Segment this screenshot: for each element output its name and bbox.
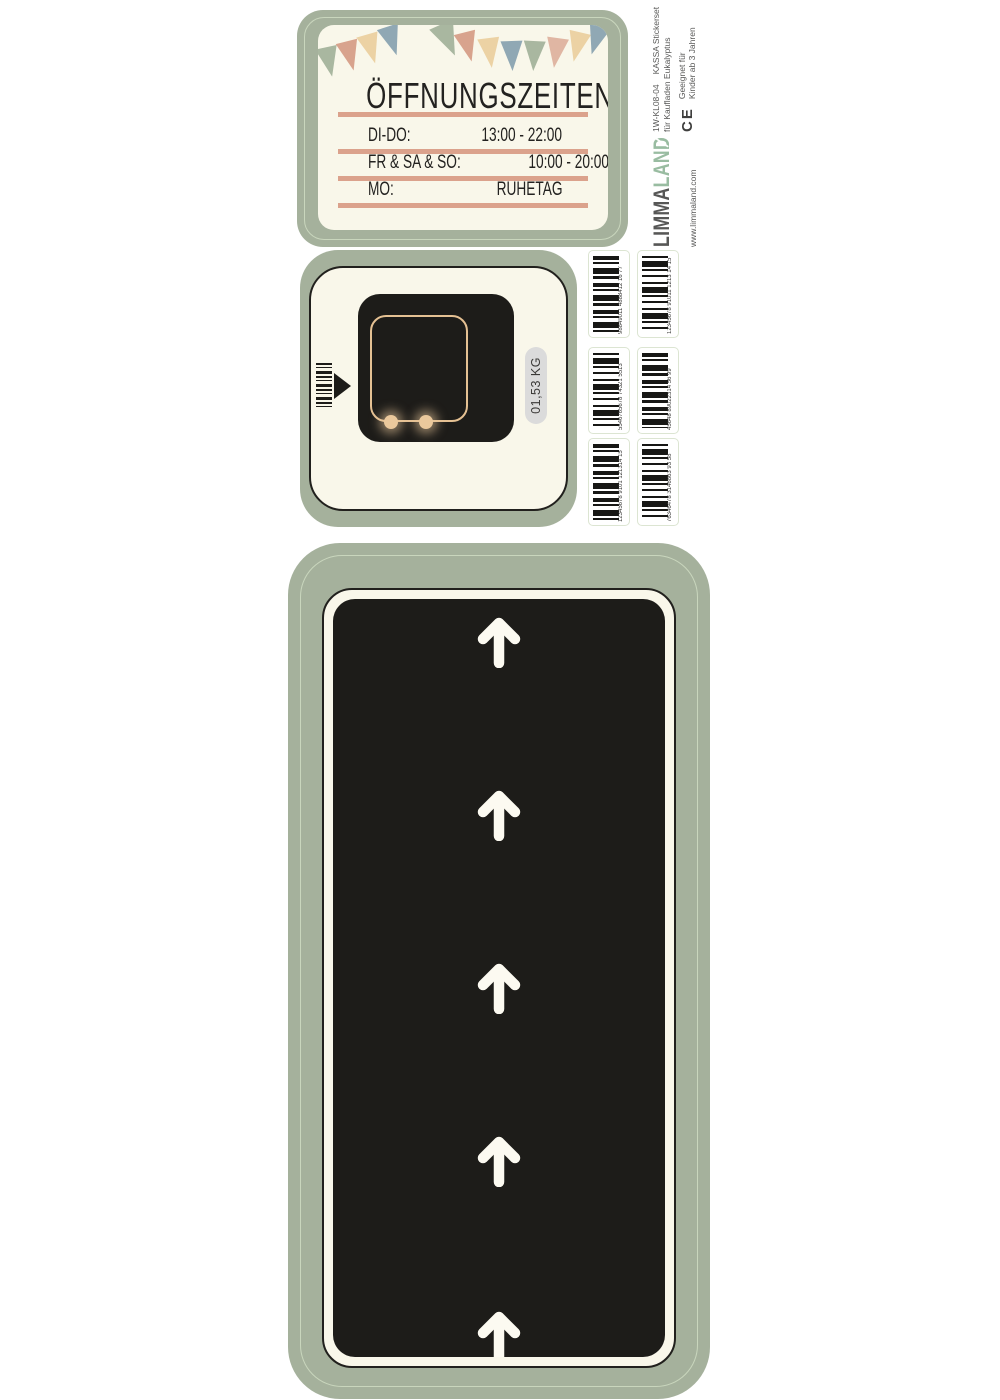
product-code: 1W-KL08-04 [651, 84, 662, 132]
barcode-icon [316, 363, 332, 409]
barcode-bars-icon [642, 256, 668, 332]
opening-hours-panel: ÖFFNUNGSZEITEN DI-DO: 13:00 - 22:00 FR &… [318, 25, 608, 230]
hours-row-value: 13:00 - 22:00 [481, 125, 562, 147]
hours-row-value: RUHETAG [496, 179, 562, 201]
hours-row-label: MO: [368, 179, 394, 201]
barcode-bars-icon [593, 353, 619, 428]
title-underline [338, 112, 588, 117]
opening-hours-title: ÖFFNUNGSZEITEN [318, 75, 608, 117]
hours-row-label: DI-DO: [368, 125, 411, 147]
barcode-bars-icon [593, 444, 619, 520]
right-arrowhead-icon [334, 373, 351, 399]
barcode-bars-icon [593, 256, 619, 332]
opening-hours-title-text: ÖFFNUNGSZEITEN [366, 75, 608, 117]
bunting-flag [500, 41, 523, 72]
barcode-number: 12345678 9101 121314 15 [618, 442, 628, 522]
hours-row: FR & SA & SO: 10:00 - 20:00 [338, 155, 588, 181]
barcode-number: 12345678 91011 1213 14 15 [667, 254, 677, 334]
age-note-line1: Geeignet für [677, 27, 687, 99]
bunting-flag [477, 37, 502, 69]
barcode-bars-icon [642, 444, 668, 520]
logo-text-land: LAND [649, 137, 674, 187]
product-desc: für Kaufladen Eukalyptus [662, 20, 673, 132]
scale-screen [358, 294, 514, 442]
cart-wheel-icon [384, 415, 398, 429]
up-arrow-icon [477, 614, 521, 668]
website-url: www.limmaland.com [688, 155, 698, 247]
up-arrow-icon [477, 1308, 521, 1357]
weight-display: 01,53 KG [525, 347, 547, 424]
age-note: Geeignet für Kinder ab 3 Jahren [677, 27, 697, 99]
barcode-number: 5546765678 74321 5513 [618, 351, 628, 430]
up-arrow-icon [477, 960, 521, 1014]
scale-panel: 01,53 KG [309, 266, 568, 511]
limmaland-logo: LIMMALAND [649, 143, 675, 247]
hours-row: MO: RUHETAG [338, 182, 588, 208]
barcode-sticker: 45648 89022314 56 99 [637, 347, 679, 434]
barcode-number: 76346478 3146863 93 58 [667, 442, 677, 522]
up-arrow-icon [477, 1133, 521, 1187]
product-name: KASSA Stickerset [651, 7, 662, 75]
conveyor-belt [333, 599, 665, 1357]
conveyor-panel [322, 588, 676, 1368]
cart-wheel-icon [419, 415, 433, 429]
barcode-bars-icon [642, 353, 668, 428]
barcode-number: 45648 89022314 56 99 [667, 351, 677, 430]
age-note-line2: Kinder ab 3 Jahren [687, 27, 697, 99]
product-info-label: 1W-KL08-04 KASSA Stickerset für Kauflade… [651, 20, 673, 132]
logo-text-limma: LIMMA [649, 187, 674, 247]
opening-hours-sticker: ÖFFNUNGSZEITEN DI-DO: 13:00 - 22:00 FR &… [297, 10, 628, 247]
barcode-sticker: 5546765678 74321 5513 [588, 347, 630, 434]
bunting-flag [522, 40, 546, 71]
ce-age-label: CE Geeignet für Kinder ab 3 Jahren [677, 20, 697, 132]
ce-mark-icon: CE [679, 107, 696, 132]
hours-row: DI-DO: 13:00 - 22:00 [338, 128, 588, 154]
barcode-sticker: 98849011 4888412 16 77 [588, 250, 630, 338]
cart-outline-icon [370, 315, 468, 422]
barcode-sticker: 12345678 91011 1213 14 15 [637, 250, 679, 338]
up-arrow-icon [477, 787, 521, 841]
hours-row-value: 10:00 - 20:00 [528, 152, 608, 174]
sticker-sheet: ÖFFNUNGSZEITEN DI-DO: 13:00 - 22:00 FR &… [0, 0, 1000, 1400]
conveyor-belt-sticker [288, 543, 710, 1399]
barcode-number: 98849011 4888412 16 77 [618, 254, 628, 334]
barcode-sticker: 76346478 3146863 93 58 [637, 438, 679, 526]
barcode-sticker: 12345678 9101 121314 15 [588, 438, 630, 526]
weight-value: 01,53 KG [529, 357, 543, 414]
hours-row-label: FR & SA & SO: [368, 152, 461, 174]
scale-sticker: 01,53 KG [300, 250, 577, 527]
